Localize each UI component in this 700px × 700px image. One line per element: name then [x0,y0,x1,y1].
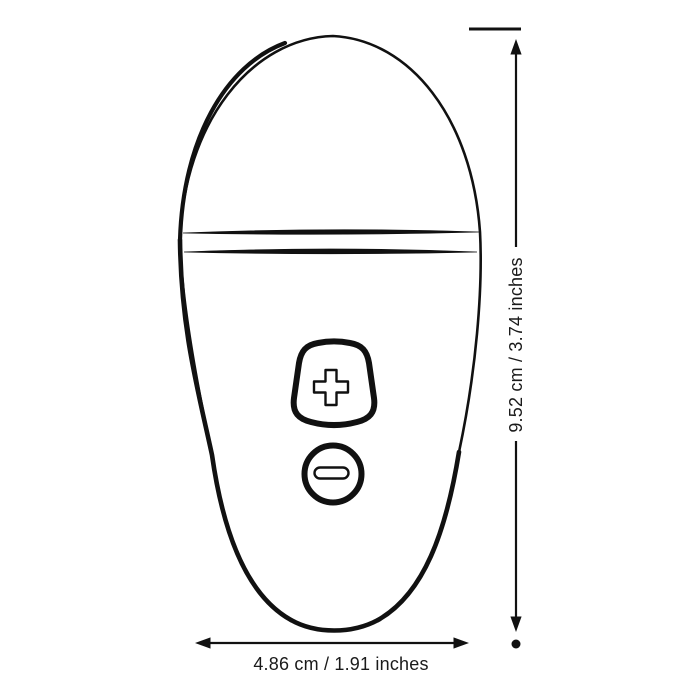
width-left-arrowhead [195,637,211,648]
product-dimension-diagram: 9.52 cm / 3.74 inches 4.86 cm / 1.91 inc… [0,0,700,700]
device-outline-thick-upper-left [180,43,285,240]
width-right-arrowhead [454,637,470,648]
height-dimension-label: 9.52 cm / 3.74 inches [505,225,527,465]
minus-icon [315,468,349,479]
seam-line-lower [184,249,477,254]
device-outline-thick-lower-left [180,240,291,620]
decrease-button [305,446,362,503]
diagram-drawing [0,0,700,700]
device-seam-lines [183,230,479,254]
height-up-arrowhead [510,39,521,55]
width-dimension [195,637,469,648]
width-dimension-label: 4.86 cm / 1.91 inches [221,653,461,675]
device-outline-thick-bottom [291,620,378,631]
device-outline-thick-lower-right [378,452,459,620]
height-down-arrowhead [510,617,521,633]
increase-button [294,342,375,426]
device-outline [180,36,481,631]
seam-line-upper [183,230,479,235]
height-bottom-dot [512,640,521,649]
